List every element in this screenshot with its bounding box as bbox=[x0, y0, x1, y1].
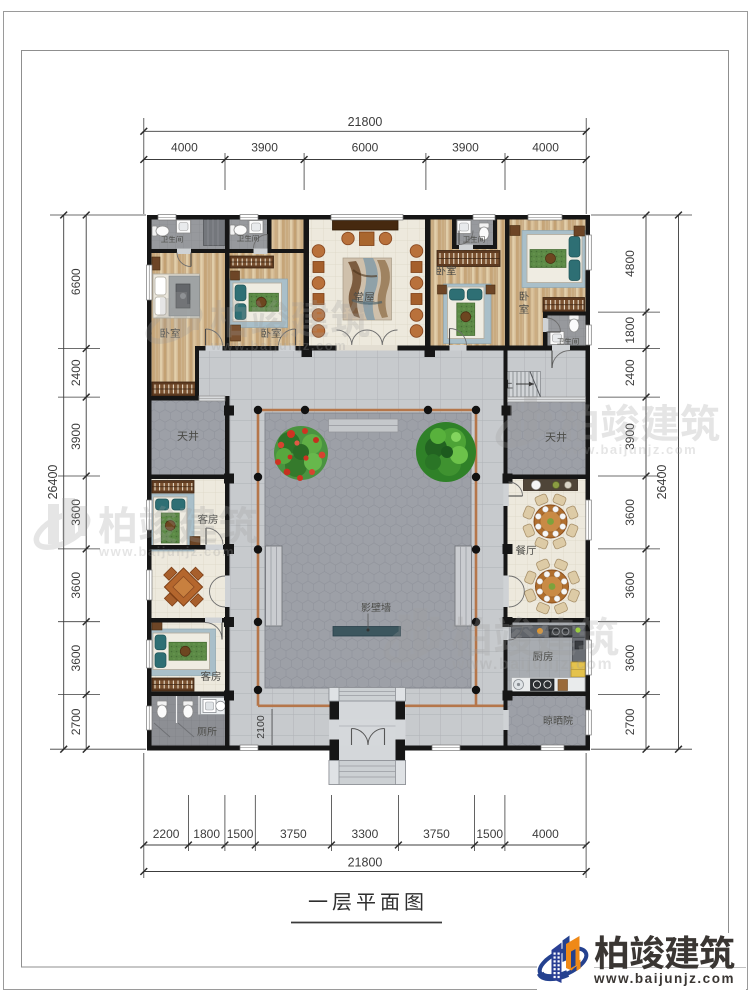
svg-text:2400: 2400 bbox=[623, 359, 637, 386]
svg-text:1500: 1500 bbox=[476, 827, 503, 841]
svg-text:3600: 3600 bbox=[69, 644, 83, 671]
svg-text:21800: 21800 bbox=[348, 115, 383, 129]
svg-text:4000: 4000 bbox=[532, 141, 559, 155]
svg-text:3900: 3900 bbox=[251, 141, 278, 155]
svg-text:2400: 2400 bbox=[69, 359, 83, 386]
svg-text:26400: 26400 bbox=[46, 465, 60, 500]
svg-text:3600: 3600 bbox=[623, 499, 637, 526]
svg-text:3600: 3600 bbox=[623, 572, 637, 599]
svg-text:1800: 1800 bbox=[623, 317, 637, 344]
svg-text:2700: 2700 bbox=[623, 708, 637, 735]
svg-text:2200: 2200 bbox=[153, 827, 180, 841]
svg-text:www.baijunjz.com: www.baijunjz.com bbox=[98, 544, 235, 559]
svg-text:4000: 4000 bbox=[171, 141, 198, 155]
svg-text:4800: 4800 bbox=[623, 250, 637, 277]
svg-text:6600: 6600 bbox=[69, 268, 83, 295]
svg-text:4000: 4000 bbox=[532, 827, 559, 841]
svg-text:www.baijunjz.com: www.baijunjz.com bbox=[560, 442, 697, 457]
svg-text:3600: 3600 bbox=[623, 644, 637, 671]
svg-text:6000: 6000 bbox=[352, 141, 379, 155]
svg-text:3750: 3750 bbox=[423, 827, 450, 841]
svg-text:3300: 3300 bbox=[352, 827, 379, 841]
svg-text:1800: 1800 bbox=[193, 827, 220, 841]
svg-text:www.baijunjz.com: www.baijunjz.com bbox=[593, 971, 734, 986]
svg-text:www.baijunjz.com: www.baijunjz.com bbox=[210, 338, 347, 353]
svg-text:www.baijunjz.com: www.baijunjz.com bbox=[451, 656, 613, 673]
svg-text:3750: 3750 bbox=[280, 827, 307, 841]
svg-text:1500: 1500 bbox=[227, 827, 254, 841]
svg-text:3900: 3900 bbox=[452, 141, 479, 155]
svg-text:21800: 21800 bbox=[348, 856, 383, 870]
svg-text:3900: 3900 bbox=[69, 423, 83, 450]
svg-text:3600: 3600 bbox=[69, 572, 83, 599]
svg-text:2700: 2700 bbox=[69, 708, 83, 735]
svg-text:26400: 26400 bbox=[655, 465, 669, 500]
svg-text:2100: 2100 bbox=[255, 715, 267, 739]
